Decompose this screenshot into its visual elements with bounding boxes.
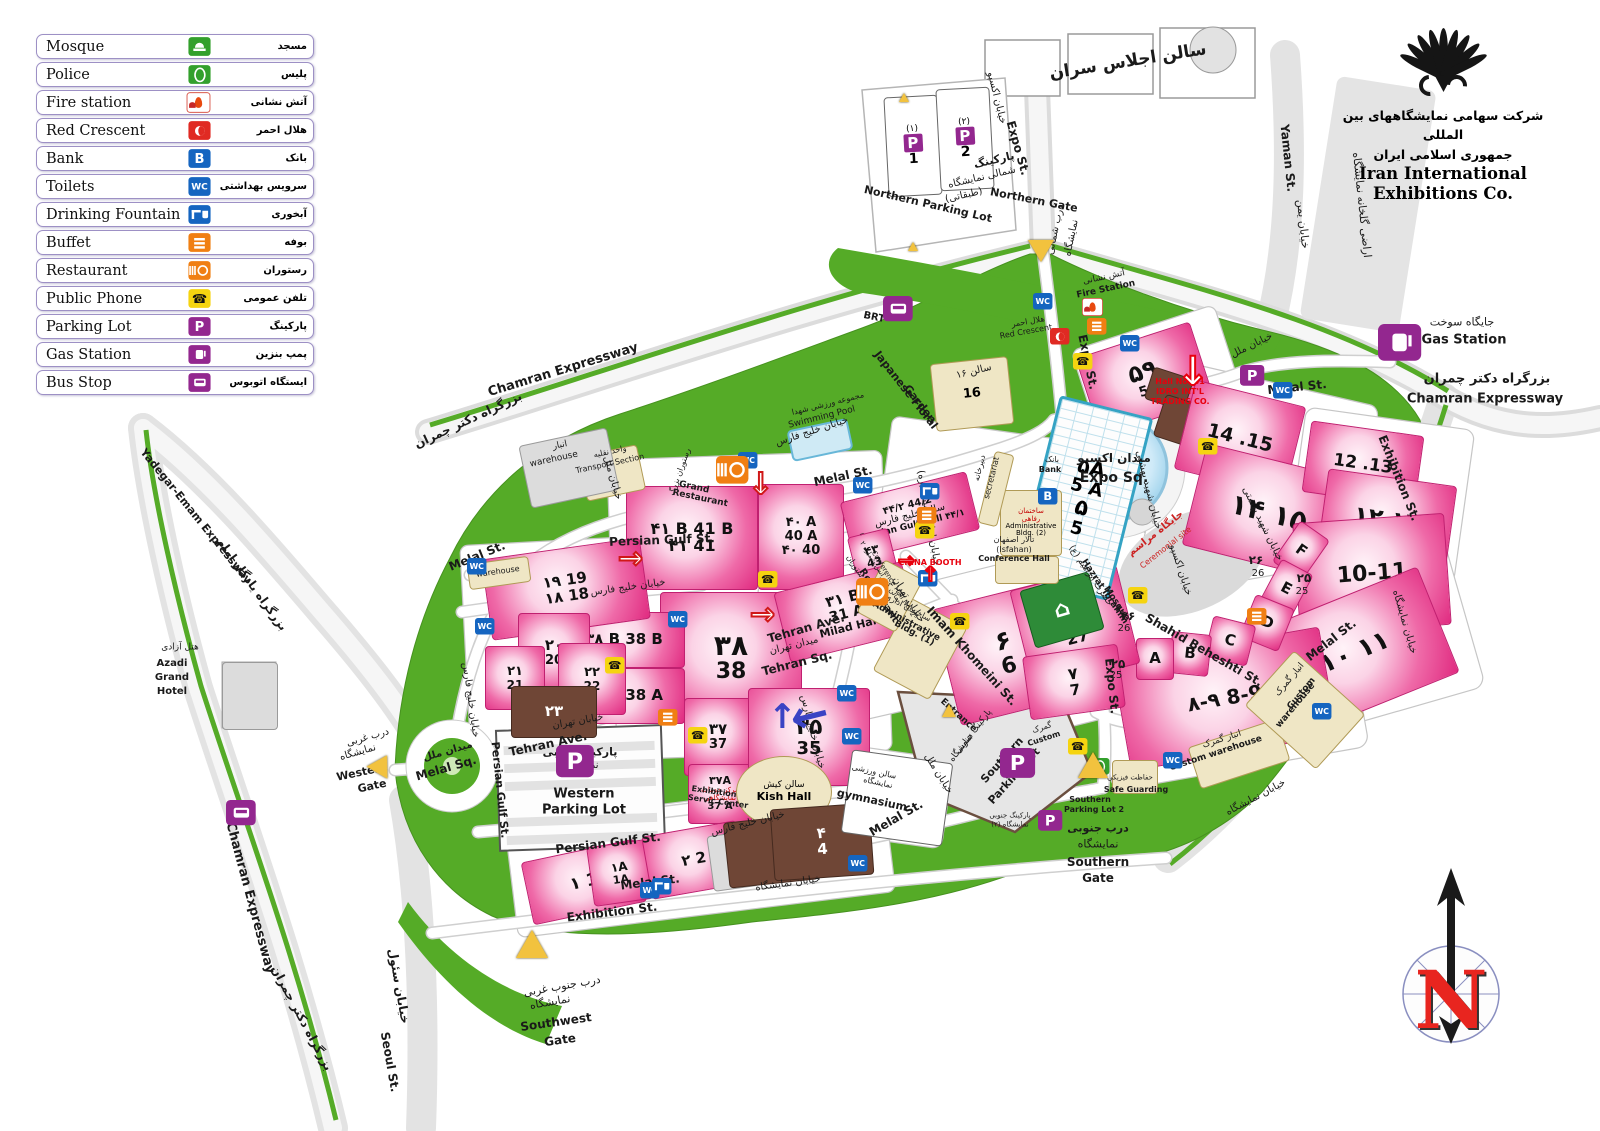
map-label: ۲۶ [1249,554,1264,566]
iie-fan-logo-icon [1395,18,1491,98]
redcrescent-icon [1050,328,1069,345]
map-label: 25 [1110,671,1123,681]
map-icon-phone: ☎ [758,571,777,588]
hall-label: 4 [817,842,829,859]
legend-label-fa: ایستگاه اتوبوس [213,375,307,391]
map-label: پارکینگ جنوبی [989,813,1030,820]
map-icon-phone: ☎ [688,727,707,744]
hall-label: 5 [1068,518,1085,540]
map-icon-parking: P [556,745,594,777]
map-label: تالار اصفهان [994,536,1035,544]
hall-label: 38 [716,660,747,683]
legend-label-fa: آبخوری [213,207,307,223]
map-label: بانک [1045,456,1059,464]
map-label: دبیرخانه [973,454,987,482]
map-label: Seoul St. [379,1031,401,1093]
map-label: بزرگراه دکتر چمران [1424,373,1551,386]
legend-label-fa: تلفن عمومی [213,291,307,307]
company-name-en-1: Iran International [1328,164,1558,184]
map-label: Grand [155,673,189,683]
legend-row-gas-station: Gas Stationپمپ بنزین [36,342,314,367]
map-label: خیابان اکسپو [1167,543,1193,597]
wc-icon: WC [842,728,861,745]
map-icon-wc: WC [1312,703,1331,720]
map-label: نمایشگاه (۲) [991,822,1028,829]
legend-label-fa: پارکینگ [213,319,307,335]
company-name-en-2: Exhibitions Co. [1328,184,1558,204]
hall-label: 40 A [785,530,818,544]
map-label: جایگاه سوخت [1430,317,1494,328]
phone-icon: ☎ [1128,587,1147,604]
map-label: TRADING CO. [1150,398,1209,406]
northern-gate-marker [1028,240,1054,262]
hall-label: ⌂ [1051,597,1073,624]
parking-icon: P [1038,810,1062,831]
map-label: Bank [1039,466,1062,474]
hall-label: C [1223,632,1238,650]
hall-label: E [1278,580,1295,599]
legend-row-bank: BankBبانک [36,146,314,171]
buffet-icon [188,233,210,252]
phone-icon: ☎ [188,289,210,308]
map-icon-wc: WC [842,728,861,745]
map-label: میدان اکسپو [1077,452,1151,464]
map-label: 26 [1252,569,1265,579]
hall-label: ۱۸ 18 [544,586,590,608]
wc-icon: WC [1312,703,1331,720]
map-icon-parking: P [1240,365,1264,386]
idro-hall61-arrow: ↓ [1176,352,1210,392]
southwest-gate-marker [516,930,548,958]
legend-row-restaurant: Restaurantرستوران [36,258,314,283]
phone-icon: ☎ [950,613,969,630]
southern-gate-marker [1078,752,1108,778]
hall-A: A [1136,638,1174,680]
map-label: بزرگراه دکتر چمران [269,964,334,1073]
legend-label-en: Mosque [46,39,186,55]
legend-label-en: Bus Stop [46,375,186,391]
legend-row-drinking-fountain: Drinking Fountainآبخوری [36,202,314,227]
map-icon-gas [1378,324,1421,361]
legend-label-en: Fire station [46,95,184,111]
wc-icon: WC [475,618,494,635]
hall-label: ۲۱ [507,665,523,679]
legend-label-en: Red Crescent [46,123,186,139]
phone-icon: ☎ [1198,438,1217,455]
north-compass: N [1396,866,1506,1061]
legend-label-en: Toilets [46,179,186,195]
south-parking-entrance-marker [942,704,956,717]
hall-label: 1 [908,152,919,167]
map-icon-wc: WC [475,618,494,635]
map-label: Safe Guarding [1104,786,1168,794]
legend-row-bus-stop: Bus Stopایستگاه اتوبوس [36,370,314,395]
map-label: Gas Station [1422,334,1507,347]
legend-label-en: Police [46,67,186,83]
map-label: (Isfahan) [996,546,1032,554]
map-label: Azadi [157,659,188,669]
hall-label: Kish Hall [757,791,812,803]
map-icon-phone: ☎ [1073,353,1092,370]
hall-label: ۴۰ A [786,516,816,530]
fire-icon [1082,298,1103,316]
map-label: سالن اجلاس سران [1048,41,1207,83]
map-label: خیابان سئول [386,947,411,1024]
map-icon-wc: WC [848,855,867,872]
wc-icon: WC [467,558,486,575]
map-label: خیابان نمایشگاه [1225,778,1288,818]
map-label: خیابان ملل [1230,332,1275,361]
map-icon-wc: WC [837,685,856,702]
bus-icon [188,373,210,392]
map-icon-wc: WC [467,558,486,575]
hall-label: ۳۷ [709,722,727,738]
buffet-icon [658,709,677,726]
map-icon-phone: ☎ [1128,587,1147,604]
phone-icon: ☎ [758,571,777,588]
map-label: نمایشگاه [1078,839,1119,850]
map-label: بزرگراه یادگار امام [214,535,289,632]
map-label: Expo Sq. [1080,471,1149,485]
map-label: Chamran Expressway [486,341,639,399]
legend-label-en: Bank [46,151,186,167]
parking-icon: P [1240,365,1264,386]
legend-label-fa: سرویس بهداشتی [213,179,307,195]
map-label: Parking Lot 2 [1064,806,1124,814]
legend-label-en: Gas Station [46,347,186,363]
map-label: Parking Lot [542,804,626,817]
legend-label-fa: مسجد [213,39,307,55]
map-icon-phone: ☎ [605,657,624,674]
map-label: نمایشگاه [948,732,976,764]
hall-label: ۲۳ [545,704,563,720]
map-label: Yaman St. [1278,124,1297,193]
arrow-to-40a: ↓ [748,470,773,500]
hall-label: P [903,134,923,152]
legend-label-en: Restaurant [46,263,186,279]
legend-label-en: Public Phone [46,291,186,307]
phone-icon: ☎ [605,657,624,674]
legend-label-en: Parking Lot [46,319,186,335]
parking-icon: P [1000,748,1035,778]
map-icon-drink [920,483,939,500]
company-name-fa-1: شرکت سهامی نمایشگاههای بین المللی [1328,106,1558,145]
drink-icon [188,205,210,224]
legend-row-mosque: Mosqueمسجد [36,34,314,59]
legend-row-buffet: Buffetبوفه [36,230,314,255]
map-label: Southwest [520,1011,593,1033]
exhibition-map-page: (۱)P1(۲)P2۵۹5914 .15۱۴ ۱۵12 .13۱۲ ۱۳10-1… [0,0,1600,1131]
map-icon-buffet [917,502,936,523]
map-label: هتل آزادی [161,644,199,653]
wc-icon: WC [1163,752,1182,769]
hall-label: F [1292,542,1310,561]
china-booth-arrow-1: → [898,550,915,570]
restaurant-icon [188,261,210,280]
mosque-icon [188,37,210,56]
bus-icon [883,296,913,321]
map-icon-wc: WC [1120,335,1139,352]
map-label: Chamran Expressway [1407,393,1563,406]
buffet-icon [1247,608,1266,625]
hall-label: ۳۸ [714,631,748,661]
police-icon [188,65,210,84]
map-icon-wc: WC [853,477,872,494]
map-icon-wc: WC [1273,382,1292,399]
map-icon-wc: WC [668,611,687,628]
wc-icon: WC [668,611,687,628]
map-legend: MosqueمسجدPoliceپلیسFire stationآتش نشان… [36,34,314,395]
map-label: ۲۵ [1111,658,1126,670]
map-icon-buffet [1247,603,1266,624]
map-icon-bank: B [1038,488,1057,505]
map-label: Gate [1082,872,1114,884]
map-label: درب جنوبی [1067,823,1128,834]
map-icon-fire [1082,298,1103,316]
buffet-icon [1087,318,1106,335]
legend-row-police: Policeپلیس [36,62,314,87]
legend-label-en: Buffet [46,235,186,251]
map-icon-drink [652,878,671,895]
hall-label: ۲ 2 [680,850,707,870]
tehran-sq-arrow-up: ↑ [768,700,797,734]
map-label: Gate [543,1032,576,1048]
legend-row-public-phone: Public Phone☎تلفن عمومی [36,286,314,311]
compass-north-letter: N [1414,960,1487,1040]
map-icon-phone: ☎ [915,522,934,539]
phone-icon: ☎ [1073,353,1092,370]
map-icon-restaurant [716,456,748,484]
map-icon-phone: ☎ [950,613,969,630]
map-label: Conference Hall [978,555,1050,563]
map-label: نمایشگاه [1063,219,1081,257]
legend-row-fire-station: Fire stationآتش نشانی [36,90,314,115]
legend-row-toilets: ToiletsWCسرویس بهداشتی [36,174,314,199]
map-label: Western [553,788,614,801]
bank-icon: B [1038,488,1057,505]
restaurant-icon [856,578,888,606]
map-icon-parking: P [1000,748,1035,778]
map-label: بزرگراه دکتر چمران [412,390,523,450]
wc-icon: WC [1273,382,1292,399]
wc-icon: WC [848,855,867,872]
map-label: ۲۶ [1121,610,1136,622]
north-parking-marker-1 [899,93,909,102]
redcrescent-icon [188,121,210,140]
legend-label-fa: بانک [213,151,307,167]
wc-icon: WC [837,685,856,702]
map-icon-parking: P [1038,810,1062,831]
hall-p1: (۱)P1 [883,95,942,198]
legend-label-en: Drinking Fountain [46,207,186,223]
hall-label: A [1149,651,1161,667]
map-icon-redcrescent [1050,328,1069,345]
north-parking-marker-2 [908,242,918,251]
map-label: Chamran Expressway [224,821,277,975]
hall-label: 37 [709,738,727,752]
map-icon-bus [883,296,913,321]
restaurant-icon [716,456,748,484]
map-label: Red Crescent [999,323,1053,340]
hall-azadi-hotel-bldg [222,662,278,730]
map-label: ۲۵ [1297,572,1312,584]
map-icon-restaurant [856,578,888,606]
parking-icon: P [188,317,210,336]
map-label: Hotel [157,687,187,697]
map-label: Gate [357,778,388,795]
map-label: 26 [1118,624,1131,634]
map-icon-buffet [1087,313,1106,334]
fire-icon [187,92,211,113]
wc-icon: WC [1120,335,1139,352]
bus-icon [226,800,256,825]
company-logo-block: شرکت سهامی نمایشگاههای بین المللی جمهوری… [1328,18,1558,204]
gas-icon [188,345,210,364]
map-label: Persian Gulf St. [489,741,510,839]
map-icon-bus [226,800,256,825]
parking-icon: P [556,745,594,777]
map-icon-buffet [658,704,677,725]
map-label: Custom [1027,730,1062,748]
drink-icon [652,878,671,895]
phone-icon: ☎ [688,727,707,744]
wc-icon: WC [1033,293,1052,310]
wc-icon: WC [853,477,872,494]
hall-label: ۲۲ [584,666,600,680]
buffet-icon [917,507,936,524]
drink-icon [920,483,939,500]
map-icon-phone: ☎ [1198,438,1217,455]
legend-label-fa: رستوران [213,263,307,279]
map-label: 25 [1296,587,1309,597]
hall-label: 7 [1069,682,1082,699]
map-label: خیابان خلیج فارس [460,662,480,738]
legend-label-fa: آتش نشانی [213,95,307,111]
legend-label-fa: پلیس [213,67,307,83]
arrow-to-31: → [750,600,775,630]
hall-label: 6 [999,653,1019,679]
legend-row-parking-lot: Parking LotPپارکینگ [36,314,314,339]
map-icon-wc: WC [1163,752,1182,769]
hall-label: ۴۰ 40 [782,544,821,558]
map-label: حفاظت فیزیکی [1107,775,1153,782]
legend-label-fa: بوفه [213,235,307,251]
arrow-to-41b: → [618,544,643,574]
company-name-fa-2: جمهوری اسلامی ایران [1328,145,1558,164]
bank-icon: B [188,149,210,168]
wc-icon: WC [188,177,210,196]
hall-label: 16 [962,386,981,402]
map-label: Southern [1067,856,1129,868]
map-label: خیابان یمن [1295,199,1311,249]
legend-row-red-crescent: Red Crescentهلال احمر [36,118,314,143]
map-icon-wc: WC [1033,293,1052,310]
china-booth-arrow-2: ↑ [922,564,939,584]
legend-label-fa: هلال احمر [213,123,307,139]
legend-label-fa: پمپ بنزین [213,347,307,363]
hall-label: P [955,127,975,145]
gas-icon [1378,324,1421,361]
map-label: Southern [1069,796,1111,804]
hall-label: 2 [960,145,971,160]
phone-icon: ☎ [915,522,934,539]
